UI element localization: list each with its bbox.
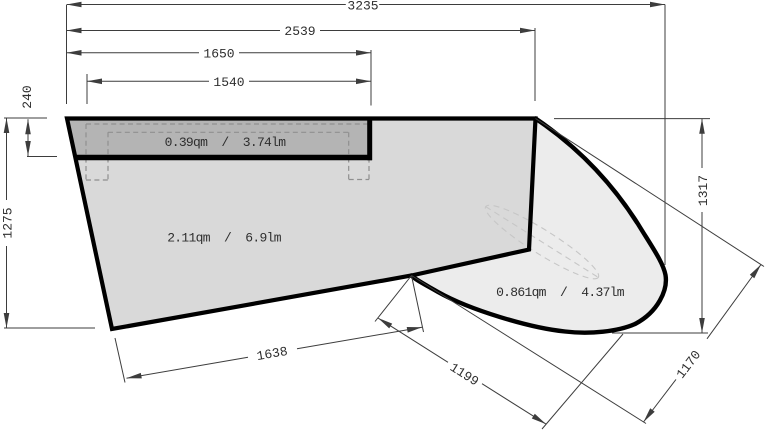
svg-text:1540: 1540 <box>213 75 244 90</box>
svg-text:2539: 2539 <box>284 24 315 39</box>
svg-text:3235: 3235 <box>347 0 378 13</box>
svg-text:1275: 1275 <box>1 207 16 238</box>
svg-text:1199: 1199 <box>447 360 481 389</box>
svg-text:0.861qm / 4.37lm: 0.861qm / 4.37lm <box>496 285 625 300</box>
svg-text:2.11qm / 6.9lm: 2.11qm / 6.9lm <box>167 231 282 246</box>
svg-text:240: 240 <box>20 85 35 108</box>
svg-text:1317: 1317 <box>696 175 711 206</box>
svg-text:1650: 1650 <box>203 46 234 61</box>
svg-text:0.39qm / 3.74lm: 0.39qm / 3.74lm <box>165 135 287 150</box>
svg-text:1170: 1170 <box>673 348 704 382</box>
svg-text:1638: 1638 <box>256 344 289 364</box>
